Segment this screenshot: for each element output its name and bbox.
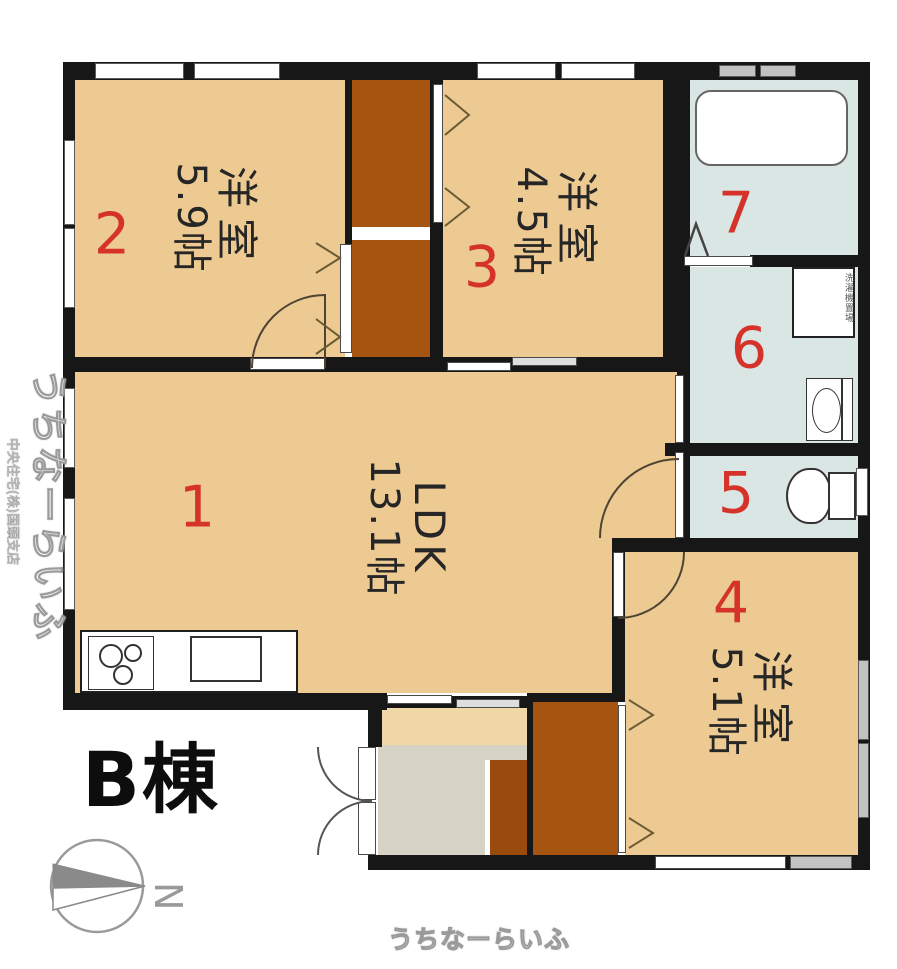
window-bedroom-c-right-2: [858, 743, 869, 818]
stove-burners-icon: [88, 636, 152, 688]
window-toilet-right: [856, 468, 868, 516]
watermark-bottom: うちなーらいふ: [388, 920, 570, 956]
entrance-double-door-arcs: [316, 745, 378, 857]
room-number-2: 2: [94, 207, 130, 264]
washbasin-bowl: [812, 388, 841, 433]
bedroom-b-label: 洋室 4.5帖: [490, 142, 600, 302]
bedroom-a-name: 洋室: [213, 138, 260, 298]
compass-north-letter: N: [146, 882, 190, 910]
closet-bedroom-a: [352, 240, 430, 357]
wall-bedrooms-bottom: [63, 357, 690, 372]
bedroom-c-size: 5.1帖: [703, 622, 748, 782]
watermark-side-sub: 中央住宅(株)国頭支店: [5, 386, 24, 618]
bedroom-a-label: 洋室 5.9帖: [150, 138, 260, 298]
window-bedroom-a-left-2: [64, 228, 75, 308]
closet-bedroom-c: [533, 702, 618, 855]
closet-bedroom-c-door: [618, 705, 626, 853]
bedroom-a-size: 5.9帖: [168, 138, 213, 298]
door-arc-toilet: [598, 457, 682, 541]
wall-bedroom-b-right: [663, 80, 677, 372]
window-bedroom-b-top-2: [561, 63, 635, 79]
ldk-size: 13.1帖: [361, 433, 406, 623]
room-number-5: 5: [718, 466, 754, 523]
window-bedroom-a-left-1: [64, 140, 75, 225]
bedroom-c-label: 洋室 5.1帖: [685, 622, 795, 782]
entry-hall-floor: [378, 702, 530, 745]
closet-chevrons-bedroom-a-icon: [314, 241, 342, 356]
kitchen-sink: [190, 636, 262, 682]
sliding-door-bedroom-b-panel-1: [447, 362, 511, 371]
wall-closet-left: [345, 80, 352, 244]
window-bedroom-a-top-1: [95, 63, 184, 79]
watermark-side-main: うちなーらいふ: [25, 360, 79, 650]
building-label: B棟: [82, 742, 220, 818]
closet-chevrons-bedroom-b-icon: [443, 90, 471, 230]
bathtub: [695, 90, 848, 166]
wall-entry-left: [368, 700, 382, 747]
door-arc-bedroom-c: [616, 550, 688, 622]
bedroom-b-size: 4.5帖: [508, 142, 553, 302]
sliding-door-hall-panel-1: [387, 695, 452, 704]
sliding-door-hall-panel-2: [456, 699, 520, 708]
window-bedroom-c-bottom-2: [790, 856, 852, 869]
shoe-cabinet-edge: [485, 760, 490, 855]
washbasin-divider: [841, 378, 843, 441]
room-number-6: 6: [731, 321, 767, 378]
window-bedroom-c-right-1: [858, 660, 869, 740]
wall-bath-wash-divider: [750, 255, 858, 267]
room-number-3: 3: [464, 240, 500, 297]
bedroom-b-name: 洋室: [553, 142, 600, 302]
bedroom-c-name: 洋室: [748, 622, 795, 782]
vent-bathroom-top-2: [760, 65, 796, 77]
vent-bathroom-top-1: [719, 65, 756, 77]
window-bedroom-a-top-2: [194, 63, 280, 79]
toilet-bowl: [786, 468, 832, 524]
closet-bedroom-b: [352, 80, 430, 227]
closet-chevrons-bedroom-c-icon: [627, 698, 655, 850]
door-washroom: [675, 375, 684, 443]
room-number-1: 1: [179, 480, 215, 537]
ldk-name: LDK: [406, 433, 453, 623]
sliding-door-bedroom-b-panel-2: [512, 357, 577, 366]
floor-plan: 洗濯機置場 LDK 13.1帖: [0, 0, 897, 969]
washer-label: 洗濯機置場: [842, 273, 855, 333]
wall-closet-big-top: [527, 693, 625, 702]
ldk-label: LDK 13.1帖: [343, 433, 453, 623]
room-number-4: 4: [713, 576, 749, 633]
shoe-cabinet: [490, 760, 527, 855]
compass-icon: N: [45, 834, 205, 944]
wall-wash-toilet-divider: [665, 443, 870, 456]
room-number-7: 7: [718, 186, 754, 243]
toilet-tank: [828, 472, 856, 520]
folding-door-bathroom-icon: [682, 220, 712, 258]
closet-bedroom-b-door: [433, 84, 443, 223]
window-bedroom-b-top-1: [477, 63, 556, 79]
window-bedroom-c-bottom-1: [655, 856, 786, 869]
wall-ldk-bottom: [63, 693, 387, 710]
closet-gap: [352, 227, 430, 240]
